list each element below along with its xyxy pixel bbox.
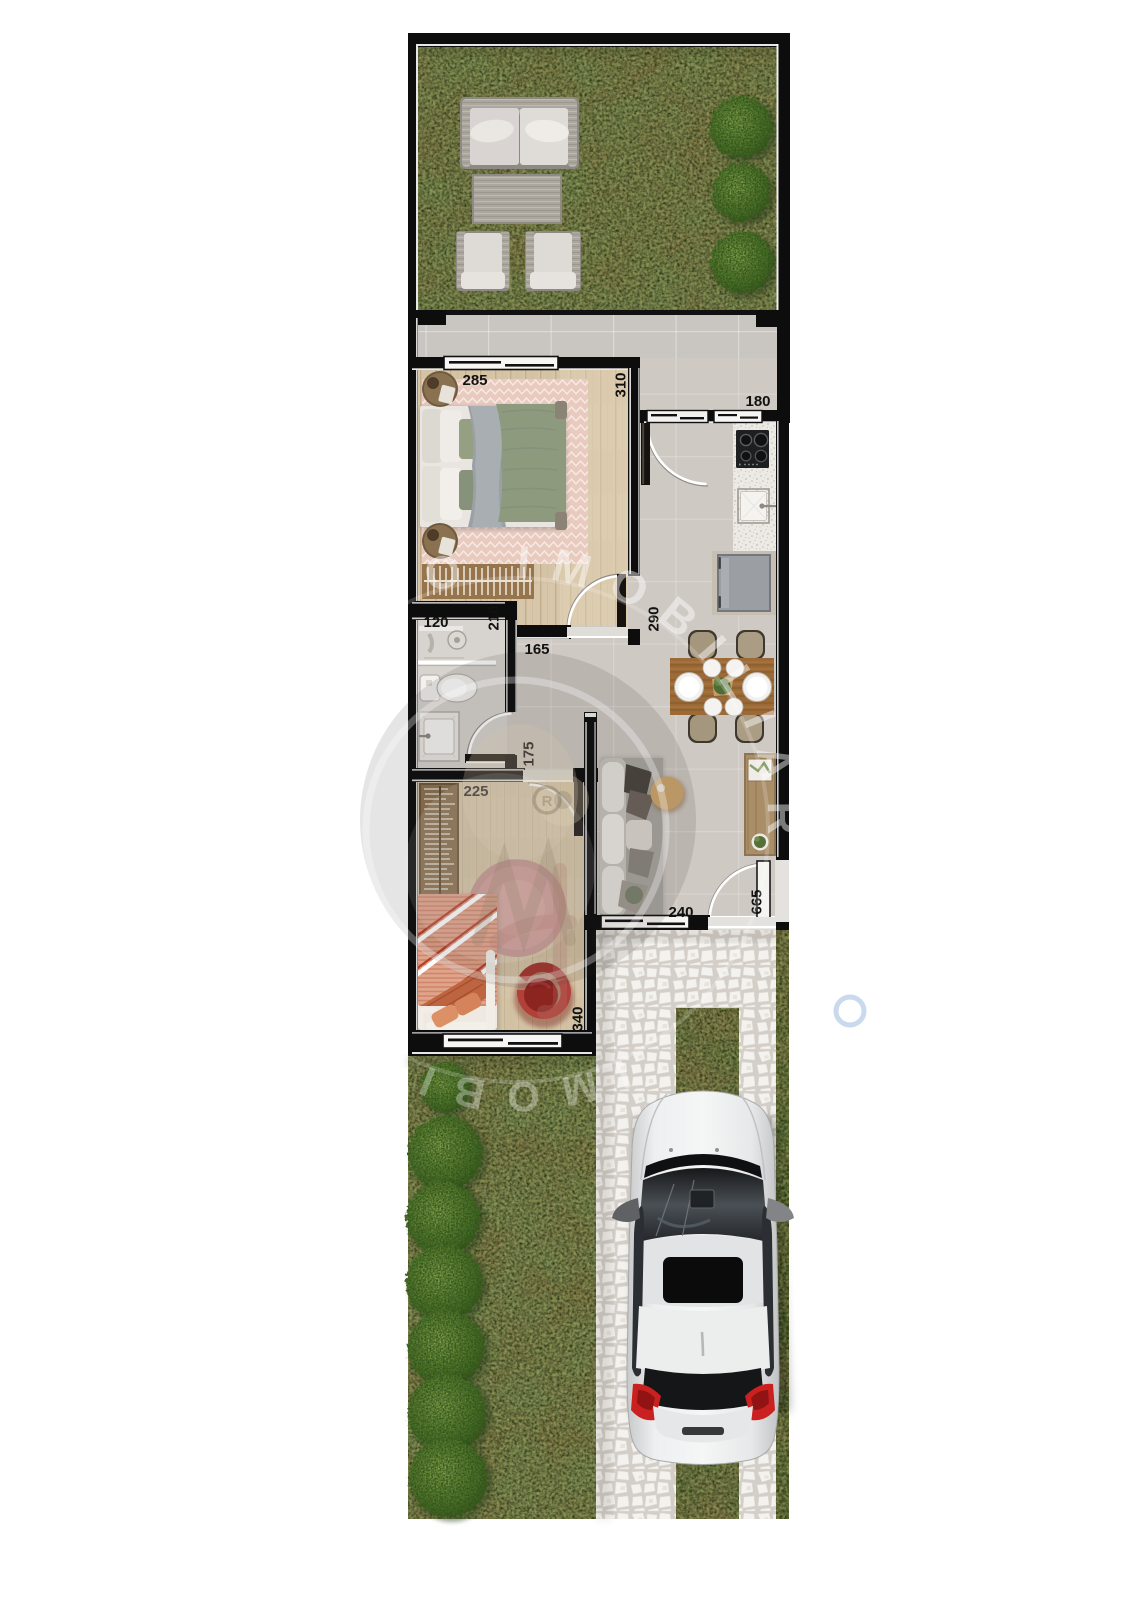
svg-text:R: R <box>542 793 553 810</box>
svg-text:120: 120 <box>423 614 448 631</box>
svg-text:240: 240 <box>668 904 693 921</box>
svg-text:210: 210 <box>486 605 503 630</box>
svg-text:285: 285 <box>462 372 487 389</box>
svg-text:310: 310 <box>613 372 630 397</box>
svg-text:340: 340 <box>570 1006 587 1031</box>
svg-text:180: 180 <box>745 393 770 410</box>
